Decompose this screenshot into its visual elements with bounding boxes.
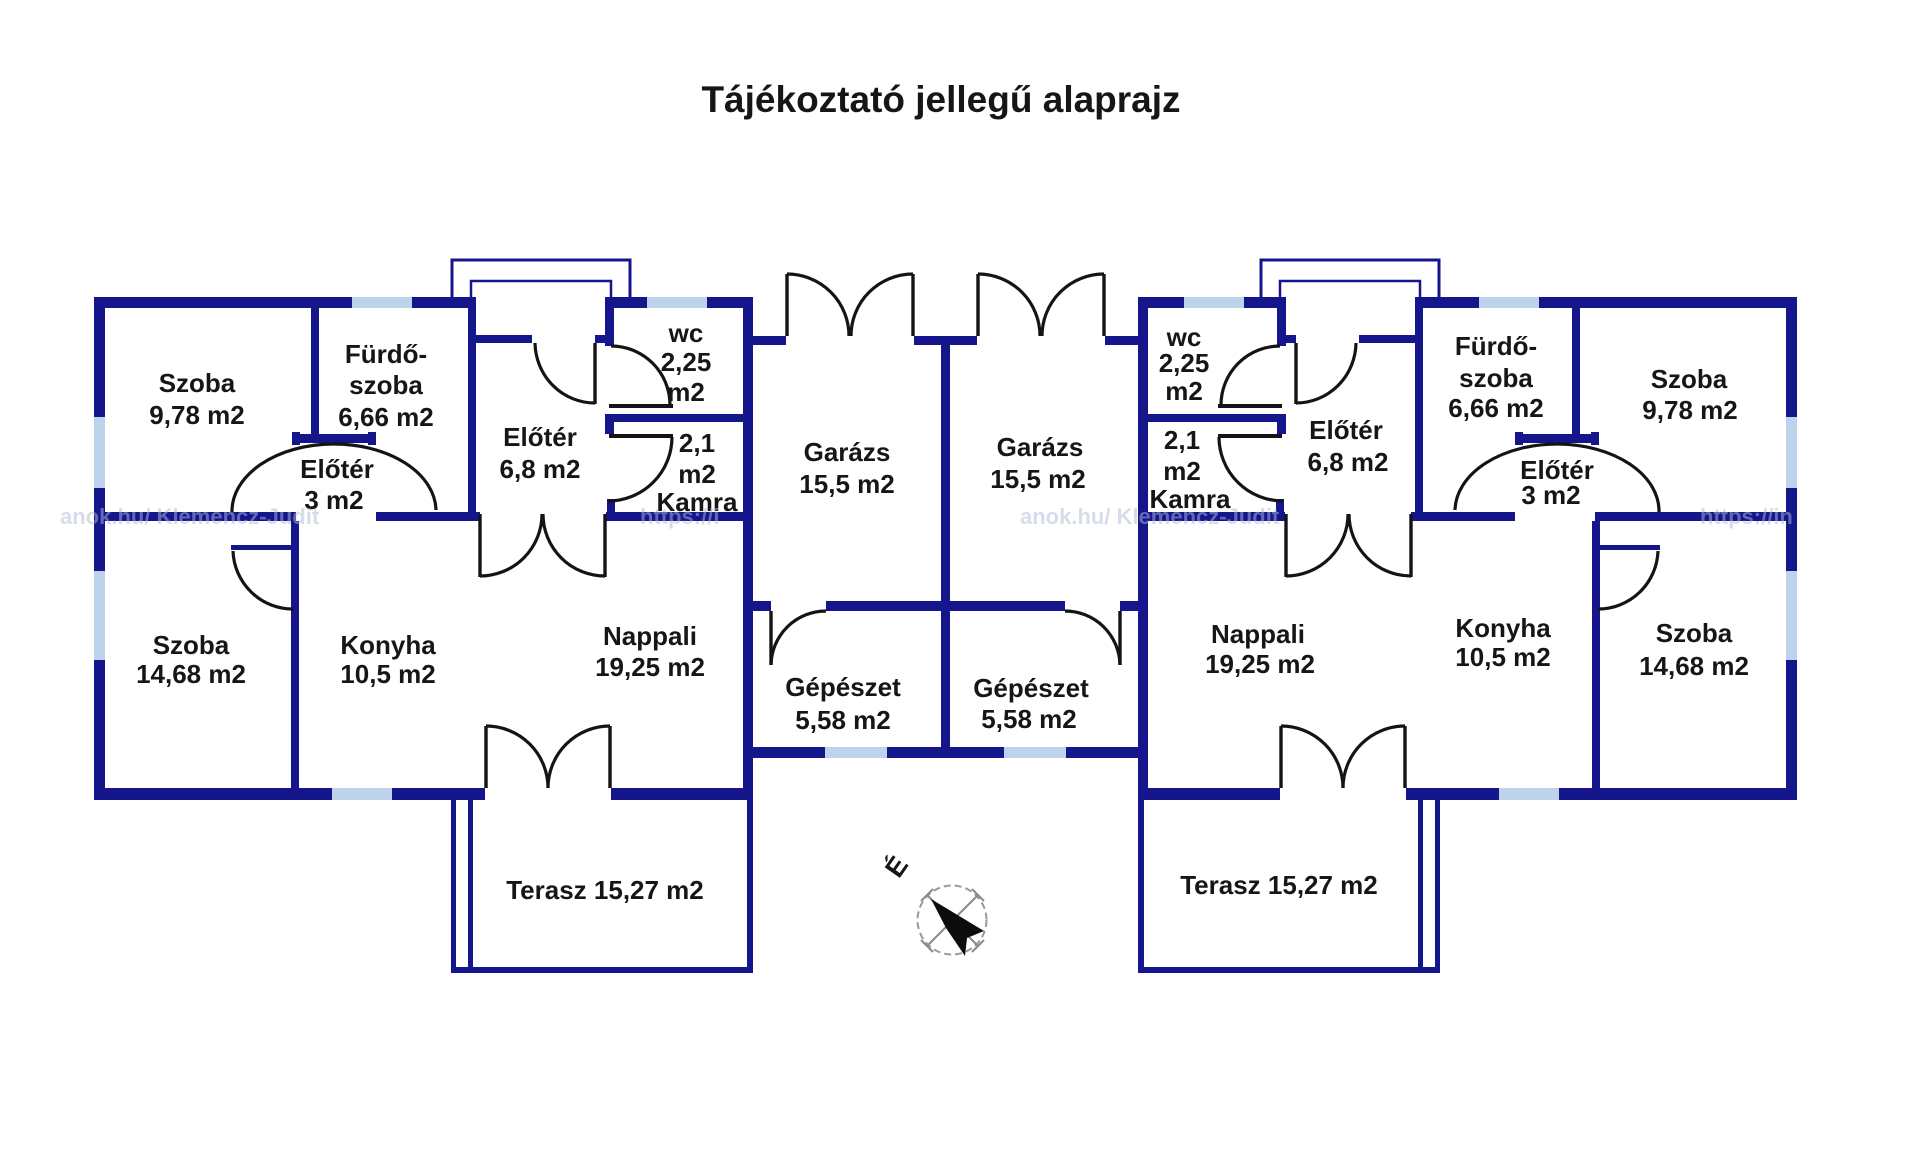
svg-text:Szoba: Szoba: [1651, 364, 1728, 394]
svg-text:https://in: https://in: [1700, 504, 1793, 529]
svg-text:Szoba: Szoba: [153, 630, 230, 660]
svg-text:9,78 m2: 9,78 m2: [1642, 395, 1737, 425]
svg-text:10,5 m2: 10,5 m2: [1455, 642, 1550, 672]
svg-text:Gépészet: Gépészet: [785, 672, 901, 702]
svg-text:6,66 m2: 6,66 m2: [1448, 393, 1543, 423]
svg-text:Előtér: Előtér: [300, 454, 374, 484]
svg-text:6,8 m2: 6,8 m2: [500, 454, 581, 484]
svg-text:2,25: 2,25: [661, 347, 712, 377]
svg-text:Gépészet: Gépészet: [973, 673, 1089, 703]
svg-text:Előtér: Előtér: [1309, 415, 1383, 445]
svg-text:Előtér: Előtér: [503, 422, 577, 452]
svg-text:Konyha: Konyha: [340, 630, 436, 660]
svg-text:m2: m2: [1163, 456, 1201, 486]
svg-text:anok.hu/ Klemencz-Judit: anok.hu/ Klemencz-Judit: [60, 504, 320, 529]
svg-text:2,25: 2,25: [1159, 348, 1210, 378]
svg-text:Garázs: Garázs: [997, 432, 1084, 462]
svg-text:https://i: https://i: [640, 504, 719, 529]
svg-text:15,5 m2: 15,5 m2: [990, 464, 1085, 494]
svg-text:Terasz 15,27 m2: Terasz 15,27 m2: [506, 875, 704, 905]
svg-text:anok.hu/ Klemencz-Judit: anok.hu/ Klemencz-Judit: [1020, 504, 1280, 529]
svg-text:19,25 m2: 19,25 m2: [595, 652, 705, 682]
svg-text:10,5 m2: 10,5 m2: [340, 659, 435, 689]
svg-text:szoba: szoba: [349, 370, 423, 400]
svg-text:wc: wc: [668, 318, 704, 348]
svg-text:Fürdő-: Fürdő-: [1455, 331, 1537, 361]
svg-text:2,1: 2,1: [1164, 425, 1200, 455]
svg-text:m2: m2: [678, 459, 716, 489]
svg-text:19,25 m2: 19,25 m2: [1205, 649, 1315, 679]
svg-text:Szoba: Szoba: [1656, 618, 1733, 648]
svg-text:Terasz 15,27 m2: Terasz 15,27 m2: [1180, 870, 1378, 900]
svg-text:5,58 m2: 5,58 m2: [981, 704, 1076, 734]
svg-text:9,78 m2: 9,78 m2: [149, 400, 244, 430]
svg-text:Tájékoztató jellegű alaprajz: Tájékoztató jellegű alaprajz: [701, 79, 1180, 120]
svg-text:6,8 m2: 6,8 m2: [1308, 447, 1389, 477]
svg-text:Szoba: Szoba: [159, 368, 236, 398]
svg-text:m2: m2: [667, 377, 705, 407]
svg-text:14,68 m2: 14,68 m2: [1639, 651, 1749, 681]
svg-text:5,58 m2: 5,58 m2: [795, 705, 890, 735]
svg-text:Garázs: Garázs: [804, 437, 891, 467]
svg-text:Konyha: Konyha: [1455, 613, 1551, 643]
svg-text:Nappali: Nappali: [603, 621, 697, 651]
svg-text:6,66 m2: 6,66 m2: [338, 402, 433, 432]
svg-text:szoba: szoba: [1459, 363, 1533, 393]
svg-text:15,5 m2: 15,5 m2: [799, 469, 894, 499]
svg-text:Nappali: Nappali: [1211, 619, 1305, 649]
svg-text:2,1: 2,1: [679, 428, 715, 458]
svg-text:m2: m2: [1165, 376, 1203, 406]
svg-text:3 m2: 3 m2: [1521, 480, 1580, 510]
svg-text:Fürdő-: Fürdő-: [345, 339, 427, 369]
svg-text:14,68 m2: 14,68 m2: [136, 659, 246, 689]
